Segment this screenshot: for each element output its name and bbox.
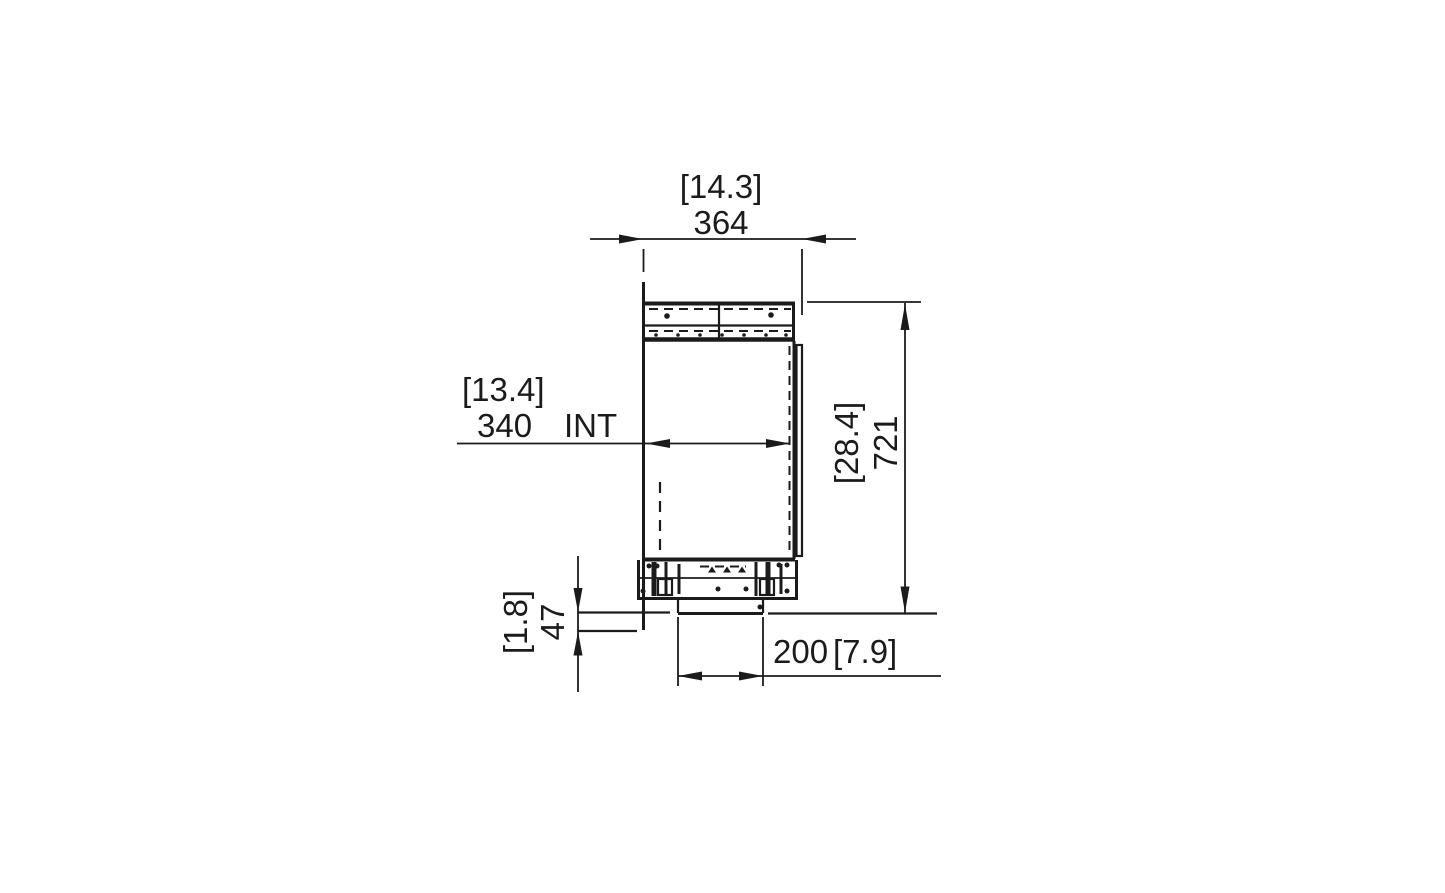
- base-assembly: [637, 560, 798, 599]
- dim-base-width-metric: 200: [773, 633, 828, 670]
- dim-internal-width-imperial: [13.4]: [462, 371, 545, 408]
- dimension-base-width: 200 [7.9]: [678, 617, 941, 686]
- drawing-canvas: [14.3] 364 [: [0, 0, 1445, 893]
- arrowhead-up-icon: [901, 304, 910, 330]
- arrowhead-down-icon: [574, 588, 583, 612]
- dim-overall-height-metric: 721: [867, 415, 904, 470]
- dim-base-recess-metric: 47: [534, 604, 571, 641]
- arrowhead-right-icon: [619, 235, 643, 244]
- arrowhead-left-icon: [646, 439, 670, 448]
- arrowhead-right-icon: [739, 672, 763, 681]
- floor-lines: [578, 613, 937, 632]
- dim-internal-width-suffix: INT: [564, 407, 617, 444]
- bottom-protrusion: [678, 598, 763, 614]
- arrowhead-left-icon: [802, 235, 826, 244]
- dim-overall-width-imperial: [14.3]: [680, 168, 763, 205]
- dimension-overall-width: [14.3] 364: [590, 168, 856, 315]
- arrowhead-right-icon: [766, 439, 790, 448]
- firebox-right-wall: [790, 341, 803, 559]
- arrowhead-up-icon: [574, 632, 583, 656]
- dim-overall-height-imperial: [28.4]: [828, 402, 865, 485]
- dim-internal-width-metric: 340: [477, 407, 532, 444]
- dim-overall-width-metric: 364: [693, 204, 748, 241]
- dimension-internal-width: [13.4] 340 INT: [457, 371, 790, 448]
- dim-base-recess-imperial: [1.8]: [497, 590, 534, 654]
- right-bracket: [744, 562, 790, 596]
- technical-drawing: [14.3] 364 [: [0, 0, 1445, 893]
- burner-tray-section: [643, 303, 795, 340]
- dimension-base-recess: [1.8] 47: [497, 556, 583, 692]
- arrowhead-down-icon: [901, 587, 910, 613]
- arrowhead-left-icon: [678, 672, 702, 681]
- dimension-overall-height: [28.4] 721: [807, 302, 921, 613]
- dim-base-width-imperial: [7.9]: [833, 633, 897, 670]
- left-bracket: [641, 562, 680, 596]
